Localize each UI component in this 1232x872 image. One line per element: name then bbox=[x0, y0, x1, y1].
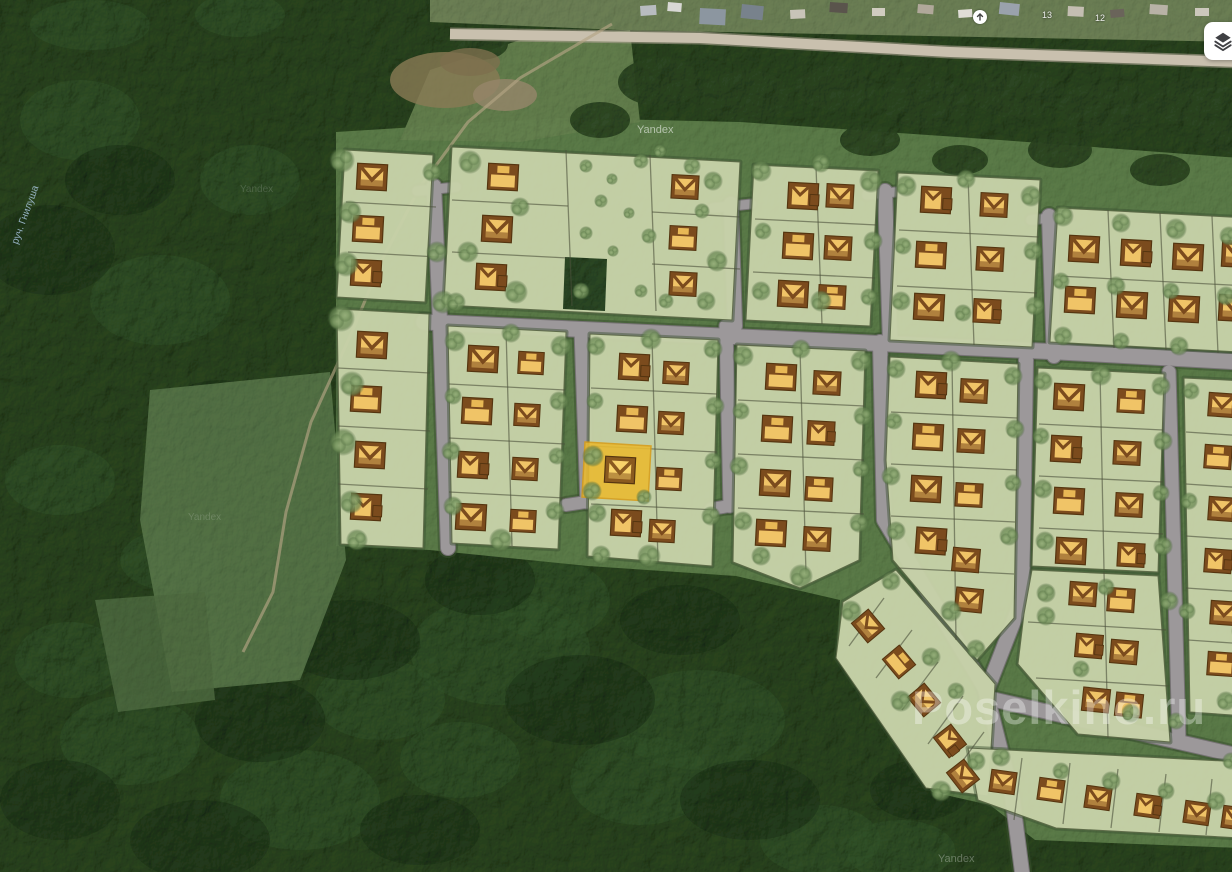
tree-icon bbox=[696, 291, 716, 311]
house-icon bbox=[1068, 235, 1099, 263]
house-icon bbox=[1037, 777, 1065, 802]
tree-icon bbox=[894, 237, 912, 255]
tree-icon bbox=[658, 293, 674, 309]
house-icon bbox=[669, 272, 697, 297]
tree-icon bbox=[1151, 376, 1171, 396]
tree-icon bbox=[1033, 371, 1053, 391]
house-icon bbox=[912, 423, 943, 451]
tree-cluster bbox=[840, 124, 900, 156]
tree-icon bbox=[940, 350, 962, 372]
plan-road bbox=[566, 502, 586, 505]
house-icon bbox=[457, 451, 489, 479]
house-icon bbox=[1064, 286, 1095, 314]
village-building bbox=[1110, 9, 1125, 18]
tree-icon bbox=[1036, 606, 1056, 626]
layers-icon bbox=[1212, 30, 1232, 52]
tree-icon bbox=[636, 489, 652, 505]
tree-icon bbox=[444, 387, 462, 405]
house-icon bbox=[604, 456, 635, 484]
tree-icon bbox=[582, 481, 602, 501]
village-building bbox=[829, 2, 848, 13]
house-icon bbox=[356, 163, 387, 191]
yandex-watermark: Yandex bbox=[938, 853, 975, 865]
tree-icon bbox=[791, 339, 811, 359]
tree-icon bbox=[683, 157, 701, 175]
tree-icon bbox=[1180, 492, 1198, 510]
house-icon bbox=[1210, 600, 1232, 625]
tree-icon bbox=[1162, 282, 1180, 300]
tree-icon bbox=[703, 171, 723, 191]
tree-icon bbox=[623, 207, 635, 219]
tree-icon bbox=[751, 546, 771, 566]
tree-icon bbox=[705, 396, 725, 416]
tree-icon bbox=[641, 228, 657, 244]
tree-icon bbox=[810, 290, 832, 312]
village-building bbox=[790, 9, 805, 19]
tree-icon bbox=[729, 456, 749, 476]
bus-stop-icon[interactable] bbox=[973, 10, 987, 24]
house-icon bbox=[765, 363, 796, 391]
village-building bbox=[1067, 6, 1084, 17]
tree-icon bbox=[701, 506, 721, 526]
tree-icon bbox=[732, 402, 750, 420]
tree-icon bbox=[1003, 366, 1023, 386]
village-building bbox=[699, 8, 726, 25]
tree-icon bbox=[582, 445, 604, 467]
tree-icon bbox=[706, 250, 728, 272]
tree-icon bbox=[489, 528, 513, 552]
layers-button[interactable] bbox=[1204, 22, 1232, 60]
tree-icon bbox=[510, 197, 530, 217]
tree-icon bbox=[1023, 241, 1043, 261]
tree-icon bbox=[1157, 782, 1175, 800]
tree-icon bbox=[1153, 536, 1173, 556]
forest-patch bbox=[200, 145, 300, 215]
house-icon bbox=[976, 247, 1004, 272]
tree-icon bbox=[606, 173, 618, 185]
yandex-watermark: Yandex bbox=[240, 184, 273, 195]
village-building bbox=[741, 4, 764, 20]
tree-icon bbox=[1153, 431, 1173, 451]
house-icon bbox=[782, 232, 813, 260]
tree-icon bbox=[853, 406, 873, 426]
forest-patch bbox=[400, 722, 520, 798]
tree-icon bbox=[545, 501, 565, 521]
house-icon bbox=[656, 467, 683, 490]
village-building bbox=[917, 4, 934, 14]
map-viewport[interactable]: YandexYandexYandexYandex руч. Гнилуша Po… bbox=[0, 0, 1232, 872]
tree-icon bbox=[895, 175, 917, 197]
tree-icon bbox=[587, 503, 607, 523]
tree-icon bbox=[886, 521, 906, 541]
house-icon bbox=[461, 397, 492, 425]
house-icon bbox=[1053, 487, 1084, 515]
tree-icon bbox=[954, 304, 972, 322]
tree-icon bbox=[852, 460, 870, 478]
poi-arrow-icon bbox=[975, 12, 985, 22]
tree-icon bbox=[694, 203, 710, 219]
tree-icon bbox=[549, 391, 569, 411]
tree-icon bbox=[637, 544, 661, 568]
tree-icon bbox=[1167, 712, 1185, 730]
tree-cluster bbox=[881, 76, 969, 128]
house-icon bbox=[1207, 651, 1232, 676]
tree-icon bbox=[921, 647, 941, 667]
house-icon bbox=[518, 351, 545, 374]
house-icon bbox=[1110, 639, 1139, 665]
tree-icon bbox=[1052, 205, 1074, 227]
tree-icon bbox=[733, 511, 753, 531]
tree-icon bbox=[339, 490, 363, 514]
tree-icon bbox=[640, 328, 662, 350]
tree-icon bbox=[860, 288, 878, 306]
tree-icon bbox=[457, 241, 479, 263]
tree-icon bbox=[548, 447, 566, 465]
tree-icon bbox=[1111, 213, 1131, 233]
village-building bbox=[640, 5, 657, 16]
tree-icon bbox=[338, 200, 362, 224]
house-icon bbox=[671, 175, 699, 200]
tree-icon bbox=[501, 323, 521, 343]
tree-icon bbox=[859, 169, 883, 193]
tree-icon bbox=[1005, 419, 1025, 439]
house-icon bbox=[1204, 548, 1232, 573]
tree-cluster bbox=[795, 66, 875, 110]
tree-icon bbox=[422, 162, 442, 182]
tree-cluster bbox=[1059, 82, 1151, 134]
house-icon bbox=[915, 371, 947, 399]
tree-icon bbox=[850, 350, 872, 372]
house-icon bbox=[1134, 793, 1163, 819]
village-building bbox=[1149, 4, 1168, 15]
satellite-map[interactable]: YandexYandexYandexYandex bbox=[0, 0, 1232, 872]
tree-icon bbox=[881, 571, 901, 591]
tree-icon bbox=[1053, 326, 1073, 346]
tree-icon bbox=[333, 251, 359, 277]
tree-icon bbox=[586, 336, 606, 356]
village-building bbox=[872, 8, 885, 16]
tree-icon bbox=[849, 513, 869, 533]
forest-patch bbox=[65, 145, 175, 215]
tree-icon bbox=[594, 194, 608, 208]
tree-icon bbox=[1101, 771, 1121, 791]
tree-icon bbox=[966, 639, 986, 659]
house-icon bbox=[824, 236, 852, 261]
tree-icon bbox=[840, 600, 862, 622]
tree-icon bbox=[1052, 272, 1070, 290]
tree-icon bbox=[653, 144, 667, 158]
tree-icon bbox=[579, 159, 593, 173]
tree-icon bbox=[1106, 276, 1126, 296]
village-building bbox=[999, 2, 1020, 16]
house-icon bbox=[1050, 435, 1082, 463]
house-icon bbox=[1172, 243, 1203, 271]
tree-icon bbox=[1072, 660, 1090, 678]
house-icon bbox=[475, 263, 507, 291]
tree-icon bbox=[1152, 484, 1170, 502]
tree-icon bbox=[1052, 762, 1070, 780]
tree-icon bbox=[1178, 602, 1196, 620]
house-icon bbox=[980, 193, 1008, 218]
house-icon bbox=[1117, 543, 1146, 568]
tree-cluster bbox=[973, 70, 1057, 118]
tree-icon bbox=[991, 747, 1011, 767]
tree-icon bbox=[1169, 336, 1189, 356]
tree-icon bbox=[1159, 591, 1179, 611]
house-icon bbox=[1069, 581, 1098, 606]
house-icon bbox=[826, 184, 854, 209]
tree-icon bbox=[633, 153, 649, 169]
house-icon bbox=[1120, 239, 1152, 267]
tree-icon bbox=[750, 160, 772, 182]
house-icon bbox=[649, 519, 676, 542]
forest-patch bbox=[680, 760, 820, 840]
tree-icon bbox=[890, 690, 912, 712]
village-building bbox=[1195, 8, 1209, 16]
house-icon bbox=[761, 415, 792, 443]
house-icon bbox=[658, 411, 685, 434]
tree-icon bbox=[444, 330, 466, 352]
tree-icon bbox=[446, 292, 466, 312]
house-icon bbox=[514, 403, 541, 426]
house-icon bbox=[487, 163, 518, 191]
dirt-patch bbox=[440, 48, 500, 76]
house-icon bbox=[1204, 444, 1232, 469]
forest-patch bbox=[195, 678, 325, 762]
house-icon bbox=[1115, 493, 1143, 518]
house-icon bbox=[1116, 291, 1147, 319]
house-icon bbox=[777, 280, 808, 308]
house-icon bbox=[354, 441, 385, 469]
house-icon bbox=[952, 547, 981, 573]
tree-icon bbox=[1032, 427, 1050, 445]
house-icon bbox=[467, 345, 498, 373]
tree-icon bbox=[607, 245, 619, 257]
house-icon bbox=[1055, 537, 1086, 565]
tree-cluster bbox=[1130, 154, 1190, 186]
house-icon bbox=[1208, 496, 1232, 521]
tree-icon bbox=[863, 231, 883, 251]
house-icon bbox=[1208, 392, 1232, 417]
tree-cluster bbox=[570, 102, 630, 138]
forest-patch bbox=[90, 255, 230, 345]
tree-icon bbox=[426, 241, 448, 263]
house-icon bbox=[1053, 383, 1084, 411]
tree-icon bbox=[346, 529, 368, 551]
tree-cluster bbox=[1028, 132, 1092, 168]
tree-cluster bbox=[618, 58, 702, 106]
forest-patch bbox=[505, 655, 655, 745]
forest-patch bbox=[5, 445, 115, 515]
tree-icon bbox=[441, 441, 461, 461]
tree-icon bbox=[591, 545, 611, 565]
tree-icon bbox=[1090, 364, 1112, 386]
house-icon bbox=[960, 379, 988, 404]
tree-icon bbox=[329, 428, 357, 456]
tree-icon bbox=[1112, 332, 1130, 350]
tree-icon bbox=[751, 281, 771, 301]
house-icon bbox=[481, 215, 512, 243]
forest-patch bbox=[30, 0, 150, 50]
tree-icon bbox=[886, 359, 906, 379]
tree-icon bbox=[572, 282, 590, 300]
house-icon bbox=[1081, 687, 1110, 713]
tree-cluster bbox=[699, 70, 791, 122]
tree-icon bbox=[811, 153, 831, 173]
tree-icon bbox=[789, 564, 813, 588]
house-icon bbox=[915, 527, 948, 555]
house-icon bbox=[663, 361, 690, 384]
tree-icon bbox=[1004, 474, 1022, 492]
house-icon bbox=[915, 241, 946, 269]
house-icon bbox=[1117, 389, 1145, 414]
house-icon bbox=[616, 405, 647, 433]
plan-road bbox=[726, 326, 730, 506]
tree-icon bbox=[940, 600, 962, 622]
tree-icon bbox=[1097, 578, 1115, 596]
house-icon bbox=[618, 353, 650, 381]
tree-icon bbox=[891, 291, 911, 311]
house-icon bbox=[1113, 441, 1141, 466]
tree-icon bbox=[579, 226, 593, 240]
house-icon bbox=[813, 371, 841, 396]
house-icon bbox=[787, 182, 819, 210]
tree-icon bbox=[586, 392, 604, 410]
tree-icon bbox=[634, 284, 648, 298]
tree-icon bbox=[458, 150, 482, 174]
tree-icon bbox=[443, 496, 463, 516]
forest-patch bbox=[620, 585, 740, 655]
tree-cluster bbox=[932, 145, 988, 175]
village-building bbox=[958, 9, 973, 18]
house-icon bbox=[910, 475, 941, 503]
tree-icon bbox=[754, 222, 772, 240]
tree-icon bbox=[1206, 791, 1226, 811]
house-icon bbox=[510, 509, 537, 532]
house-icon bbox=[955, 483, 983, 508]
tree-icon bbox=[885, 412, 903, 430]
tree-icon bbox=[1165, 218, 1187, 240]
dirt-patch bbox=[473, 79, 537, 111]
house-icon bbox=[807, 421, 836, 446]
house-icon bbox=[512, 457, 539, 480]
tree-icon bbox=[504, 280, 528, 304]
tree-icon bbox=[1121, 703, 1141, 723]
house-icon bbox=[989, 769, 1017, 794]
tree-icon bbox=[947, 682, 965, 700]
house-icon bbox=[610, 509, 642, 537]
house-icon bbox=[356, 331, 387, 359]
house-icon bbox=[759, 469, 790, 497]
house-icon bbox=[957, 429, 985, 454]
tree-icon bbox=[704, 452, 722, 470]
tree-icon bbox=[956, 169, 976, 189]
tree-icon bbox=[1182, 382, 1200, 400]
tree-icon bbox=[1033, 479, 1053, 499]
tree-icon bbox=[732, 345, 754, 367]
tree-icon bbox=[999, 526, 1019, 546]
house-icon bbox=[1075, 633, 1105, 659]
village-building bbox=[667, 2, 682, 12]
house-icon bbox=[669, 226, 697, 251]
yandex-watermark: Yandex bbox=[188, 512, 221, 523]
house-icon bbox=[755, 519, 786, 547]
house-icon bbox=[913, 293, 944, 321]
tree-icon bbox=[329, 147, 355, 173]
tree-icon bbox=[1025, 296, 1045, 316]
house-icon bbox=[920, 186, 952, 214]
forest-patch bbox=[0, 760, 120, 840]
tree-icon bbox=[1035, 531, 1055, 551]
yandex-watermark: Yandex bbox=[637, 124, 674, 136]
tree-icon bbox=[1020, 185, 1042, 207]
house-icon bbox=[803, 527, 831, 552]
tree-icon bbox=[327, 304, 355, 332]
forest-patch bbox=[360, 795, 480, 865]
house-icon bbox=[805, 477, 833, 502]
tree-icon bbox=[339, 371, 365, 397]
tree-icon bbox=[550, 335, 572, 357]
tree-icon bbox=[1036, 583, 1056, 603]
tree-icon bbox=[703, 339, 723, 359]
tree-icon bbox=[966, 751, 986, 771]
house-icon bbox=[973, 299, 1002, 324]
tree-icon bbox=[930, 780, 952, 802]
tree-icon bbox=[881, 466, 901, 486]
